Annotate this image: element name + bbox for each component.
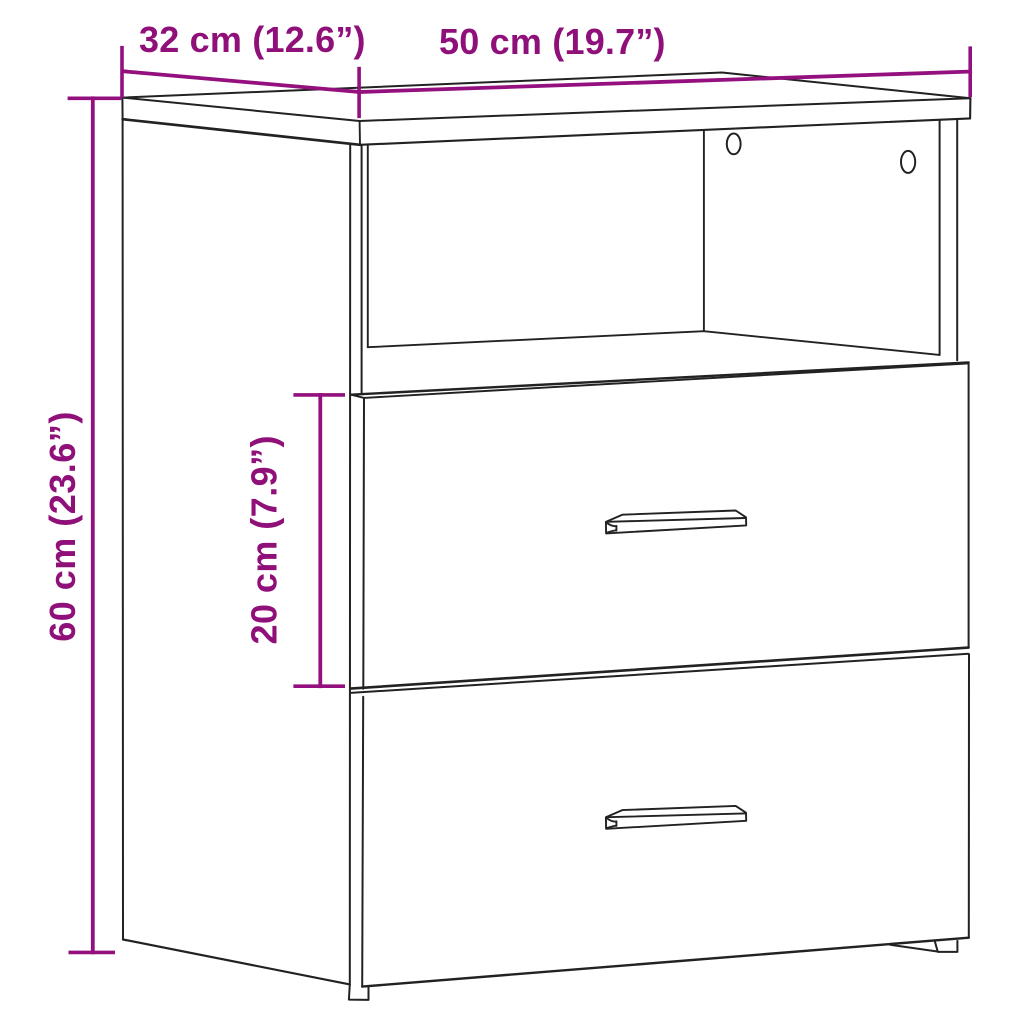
svg-text:20 cm (7.9”): 20 cm (7.9”) xyxy=(244,435,285,645)
svg-text:50 cm (19.7”): 50 cm (19.7”) xyxy=(439,21,666,62)
svg-text:32 cm (12.6”): 32 cm (12.6”) xyxy=(139,19,366,60)
svg-text:60 cm (23.6”): 60 cm (23.6”) xyxy=(42,411,83,642)
